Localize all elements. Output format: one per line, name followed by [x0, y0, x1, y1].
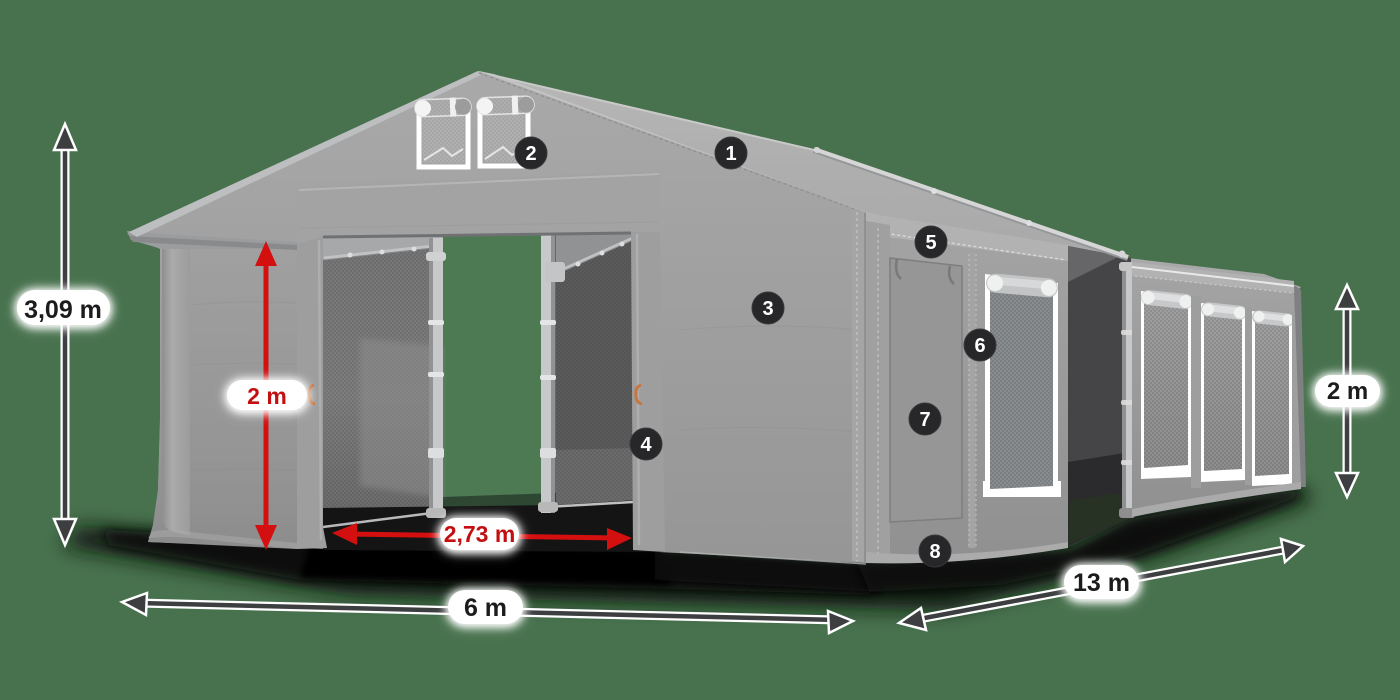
- svg-text:6: 6: [974, 335, 985, 357]
- svg-text:4: 4: [640, 434, 652, 456]
- svg-text:7: 7: [919, 409, 930, 431]
- svg-text:13 m: 13 m: [1073, 569, 1130, 597]
- svg-text:2 m: 2 m: [1327, 378, 1368, 405]
- svg-text:8: 8: [929, 541, 940, 563]
- svg-text:2: 2: [525, 143, 536, 165]
- svg-text:6 m: 6 m: [464, 594, 507, 622]
- svg-text:1: 1: [725, 143, 736, 165]
- svg-text:2 m: 2 m: [247, 383, 287, 409]
- svg-text:2,73 m: 2,73 m: [444, 521, 516, 547]
- svg-text:5: 5: [925, 232, 936, 254]
- svg-text:3,09 m: 3,09 m: [24, 296, 102, 324]
- svg-text:3: 3: [762, 298, 773, 320]
